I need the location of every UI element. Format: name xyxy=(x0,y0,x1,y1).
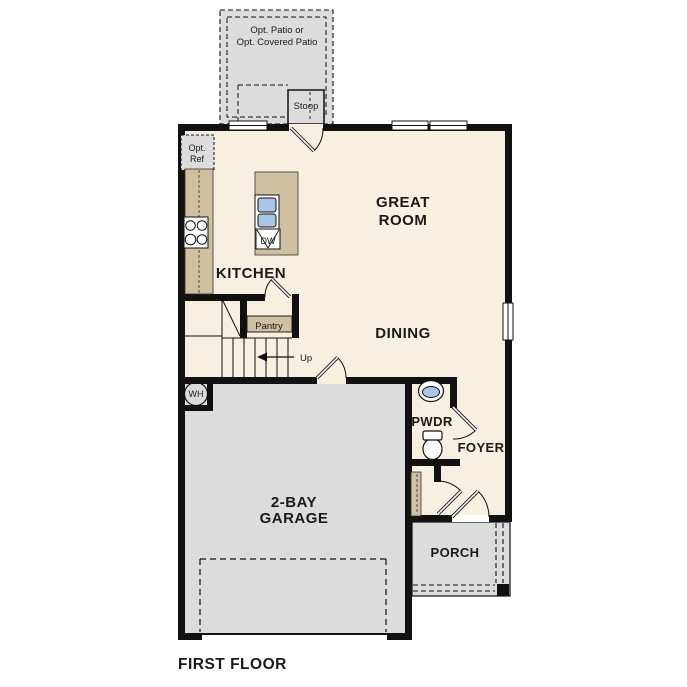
floor-plan-page: Opt. Patio or Opt. Covered Patio Stoop O… xyxy=(0,0,687,687)
opt-ref-label-line2: Ref xyxy=(190,154,205,164)
main-floor xyxy=(183,126,509,380)
wall-pantry-east xyxy=(292,294,299,338)
pantry-label: Pantry xyxy=(255,321,283,332)
wall-foyer-south-east xyxy=(489,515,512,522)
patio-label-line2: Opt. Covered Patio xyxy=(237,37,318,48)
floor-title: FIRST FLOOR xyxy=(178,656,287,673)
up-label: Up xyxy=(300,353,312,364)
toilet-bowl xyxy=(423,439,442,460)
porch-column xyxy=(497,584,509,596)
pwdr-sink-basin xyxy=(423,387,440,398)
toilet-tank xyxy=(423,431,442,440)
wall-closet-stub xyxy=(434,466,441,482)
floor-plan-drawing: Opt. Patio or Opt. Covered Patio Stoop O… xyxy=(0,0,687,687)
stoop-label: Stoop xyxy=(294,101,319,112)
wall-pantry-west xyxy=(240,294,247,338)
wall-garage-south-east xyxy=(387,633,412,640)
pwdr-label: PWDR xyxy=(411,414,453,429)
dishwasher-label: DW xyxy=(261,236,276,246)
garage-door-opening xyxy=(317,377,346,384)
patio-label-line1: Opt. Patio or xyxy=(250,25,303,36)
dining-label: DINING xyxy=(375,325,431,342)
front-door-opening xyxy=(452,515,489,522)
opt-ref-label-line1: Opt. xyxy=(188,143,205,153)
porch-label: PORCH xyxy=(431,545,480,560)
kitchen-label: KITCHEN xyxy=(216,265,286,282)
water-heater-label: WH xyxy=(189,389,204,399)
coat-closet xyxy=(411,472,421,516)
sink-bowl-2 xyxy=(258,214,276,227)
garage-label-line2: GARAGE xyxy=(260,510,329,527)
great-room-label-line2: ROOM xyxy=(379,212,428,229)
sink-bowl-1 xyxy=(258,198,276,212)
wall-garage-north-east xyxy=(346,377,457,384)
garage-label-line1: 2-BAY xyxy=(271,494,317,511)
wall-pwdr-east xyxy=(450,377,457,408)
foyer-label: FOYER xyxy=(458,440,505,455)
wall-garage-south-west xyxy=(178,633,202,640)
great-room-label-line1: GREAT xyxy=(376,194,430,211)
closet-shelf xyxy=(411,472,421,516)
